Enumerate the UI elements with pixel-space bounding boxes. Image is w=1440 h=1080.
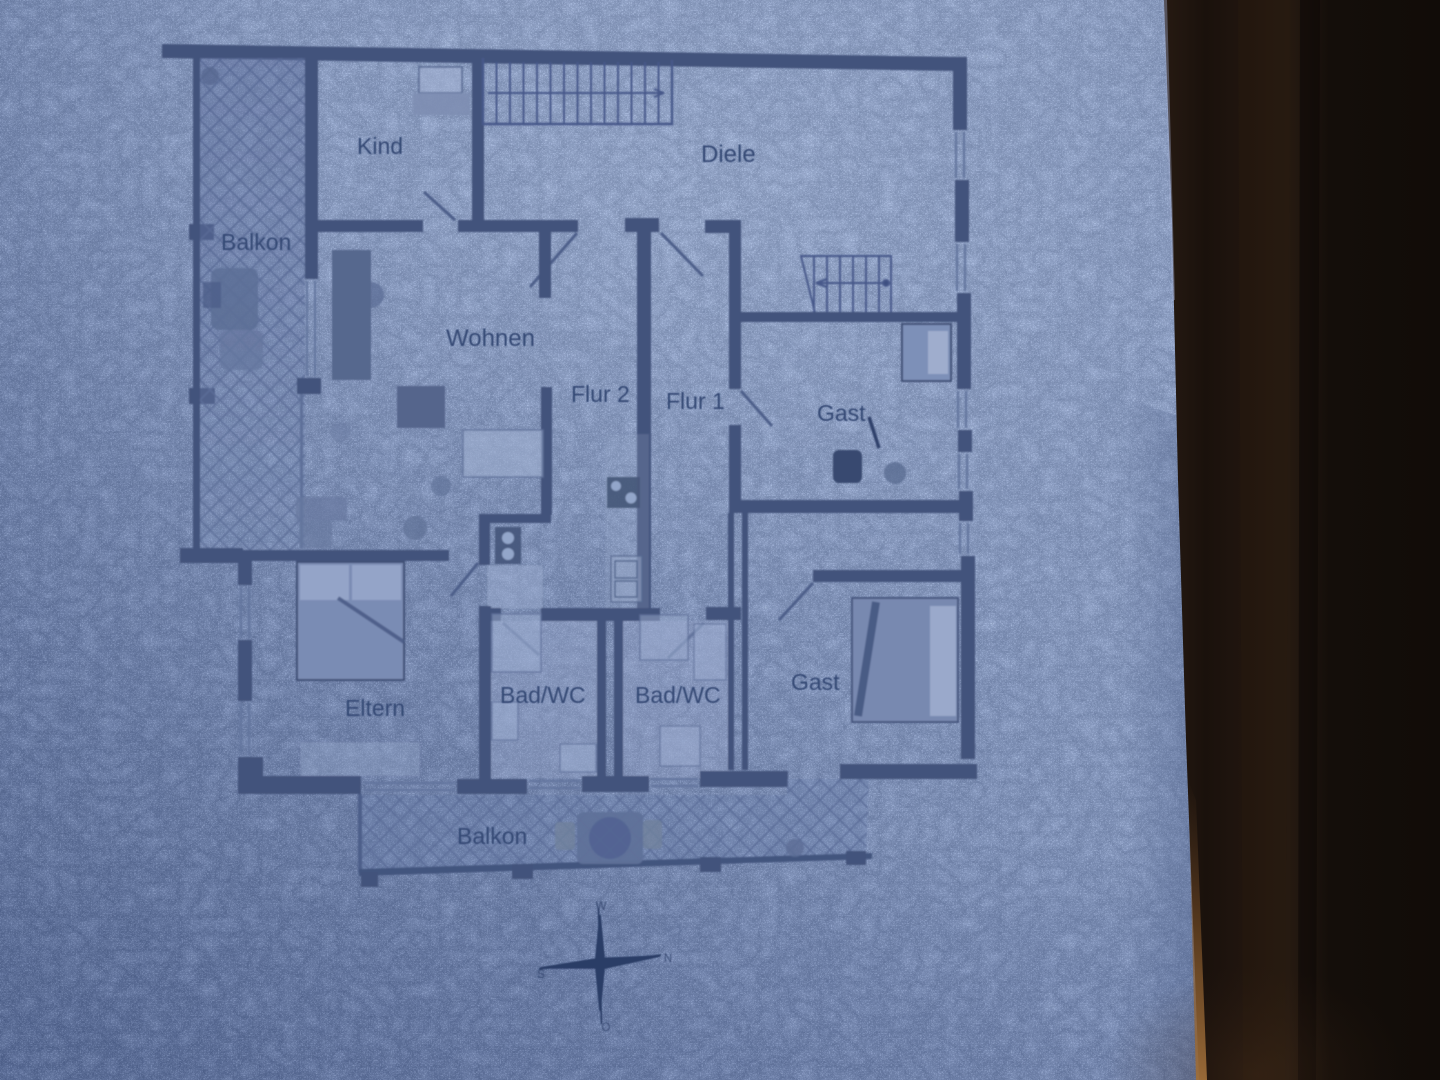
svg-text:Bad/WC: Bad/WC	[635, 682, 721, 708]
svg-text:S: S	[537, 969, 545, 981]
svg-text:Diele: Diele	[701, 141, 756, 168]
svg-text:Gast: Gast	[817, 400, 866, 426]
svg-text:O: O	[602, 1022, 611, 1034]
svg-text:Bad/WC: Bad/WC	[500, 682, 586, 708]
svg-text:W: W	[596, 901, 607, 913]
svg-text:Kind: Kind	[357, 133, 403, 159]
svg-text:Gast: Gast	[791, 669, 840, 695]
svg-text:Flur 1: Flur 1	[666, 388, 725, 414]
svg-text:Wohnen: Wohnen	[446, 325, 535, 352]
svg-text:Eltern: Eltern	[345, 695, 405, 721]
svg-text:Balkon: Balkon	[457, 823, 527, 849]
svg-text:Flur 2: Flur 2	[571, 381, 630, 407]
svg-text:Balkon: Balkon	[221, 229, 291, 255]
svg-text:N: N	[664, 953, 672, 965]
